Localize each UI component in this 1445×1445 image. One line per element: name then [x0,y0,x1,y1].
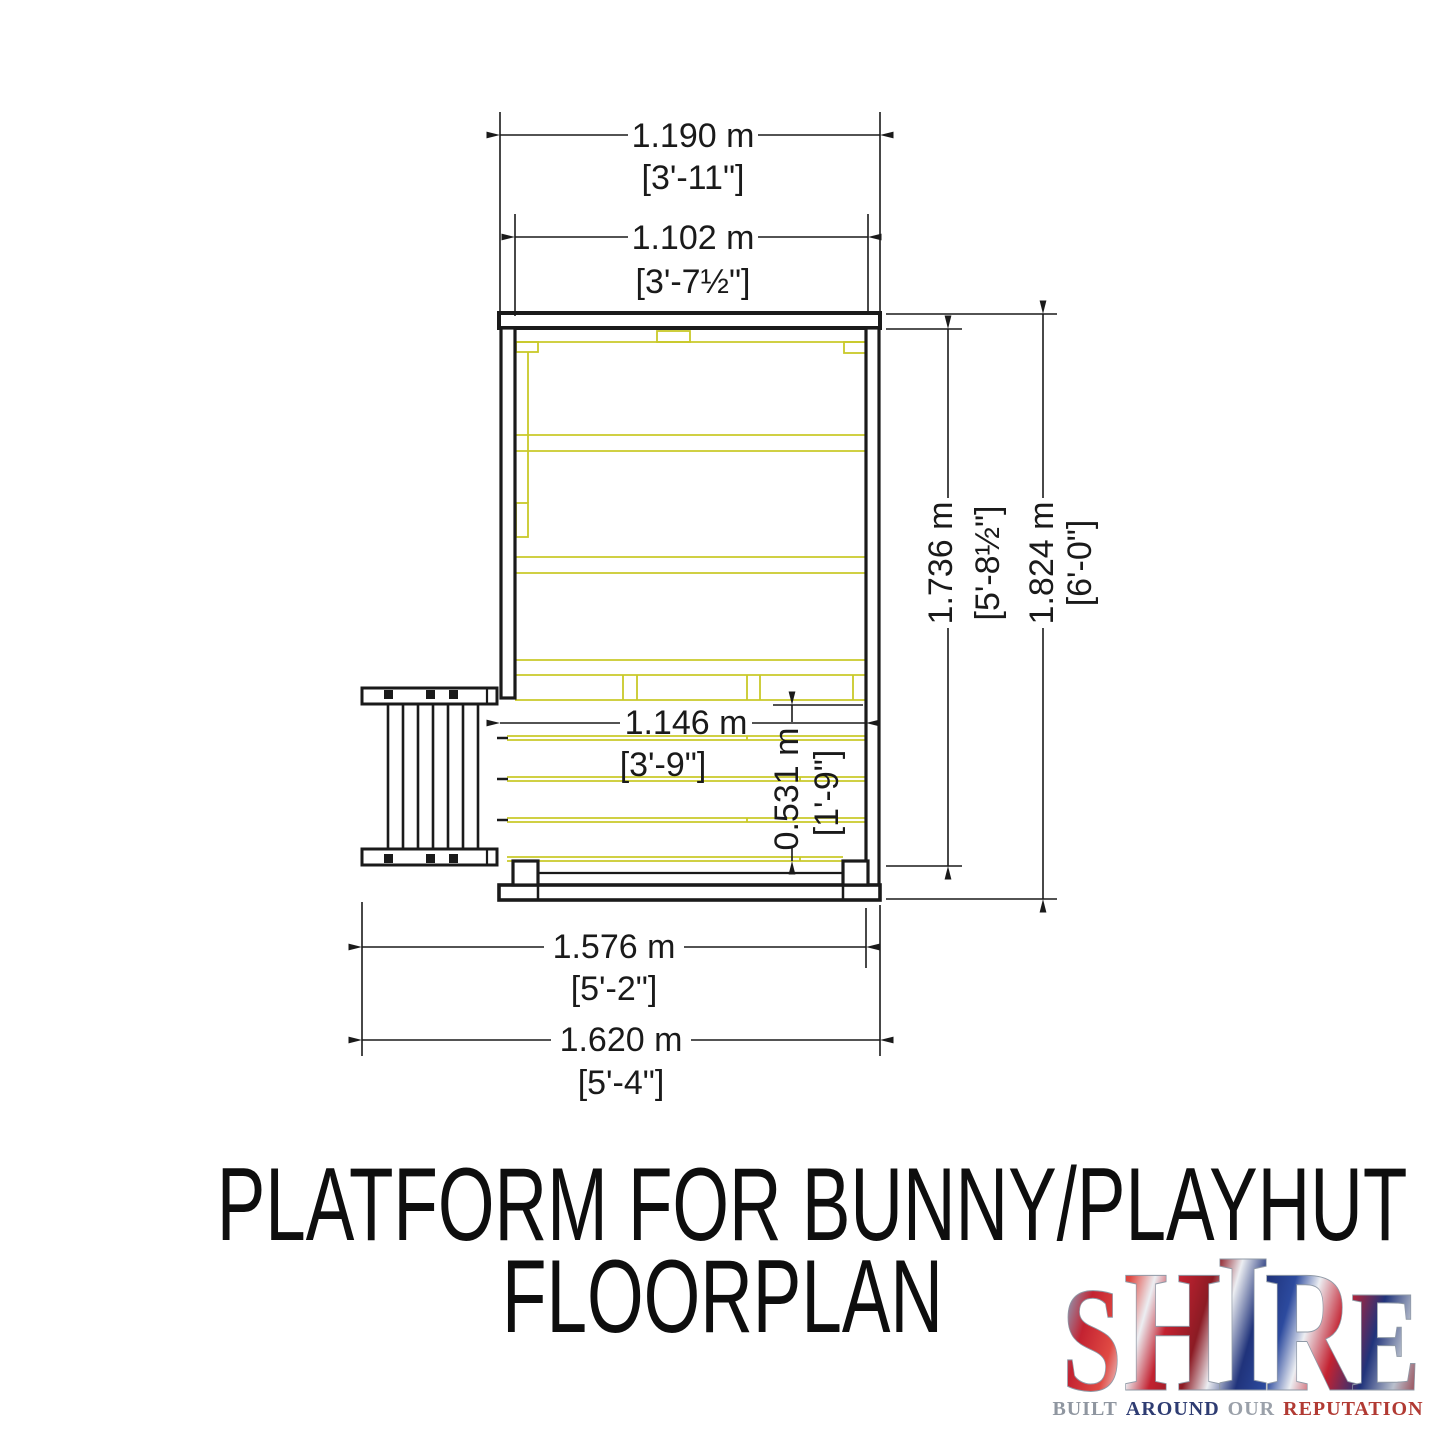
dim-deck-depth-metric: 0.531 m [768,728,806,851]
dimension-labels: 1.190 m [3'-11"] 1.102 m [3'-7½"] 1.736 … [553,117,1099,1102]
dim-bottom-inner-metric: 1.576 m [553,928,676,966]
dim-top-outer-imperial: [3'-11"] [642,159,745,197]
dim-right-inner-metric: 1.736 m [922,502,960,625]
dim-bottom-outer-imperial: [5'-4"] [578,1064,665,1102]
shire-logo: S H I R E BUILTAROUNDOURREPUTATION [1048,1205,1428,1440]
tagline-word-reputation: REPUTATION [1283,1398,1423,1420]
dim-right-inner-imperial: [5'-8½"] [969,506,1007,621]
ladder [362,688,497,865]
floorplan-drawing: 1.190 m [3'-11"] 1.102 m [3'-7½"] 1.736 … [0,0,1445,1130]
dim-top-outer-metric: 1.190 m [632,117,755,155]
tagline-word-built: BUILT [1052,1398,1117,1420]
dim-deck-width-metric: 1.146 m [625,704,748,742]
dim-deck-width-imperial: [3'-9"] [620,746,707,784]
dim-bottom-inner-imperial: [5'-2"] [571,970,658,1008]
dim-right-outer-imperial: [6'-0"] [1061,520,1099,607]
tagline-word-around: AROUND [1126,1398,1220,1420]
dim-bottom-outer-metric: 1.620 m [560,1021,683,1059]
dim-right-outer-metric: 1.824 m [1023,502,1061,625]
dim-top-inner-imperial: [3'-7½"] [636,263,751,301]
logo-tagline: BUILTAROUNDOURREPUTATION [1048,1398,1428,1421]
upper-platform-framing [515,331,866,700]
dim-top-inner-metric: 1.102 m [632,219,755,257]
dim-deck-depth-imperial: [1'-9"] [808,750,846,837]
tagline-word-our: OUR [1228,1398,1275,1420]
